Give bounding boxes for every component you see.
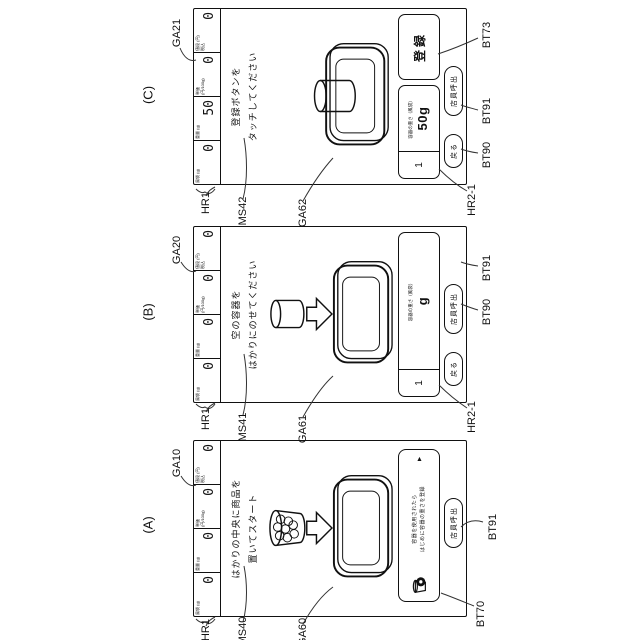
- back-button[interactable]: 戻る: [444, 134, 463, 168]
- tare-index-cell[interactable]: 1: [399, 151, 439, 178]
- header-label: 重量 (g): [196, 554, 201, 571]
- header-value: 0: [202, 488, 217, 496]
- figure-caption-c: (C): [141, 86, 156, 104]
- header-cell-price: 値段 (円) 税込 0: [194, 9, 220, 52]
- header-cell-unitprice: 単価 (円/100g) 0: [194, 484, 220, 528]
- instruction-message-c: 登録ボタンを タッチしてください: [228, 9, 262, 184]
- header-cell-unitprice: 単価 (円/100g) 0: [194, 52, 220, 96]
- tare-label: 容器の重さ（風袋）: [408, 98, 414, 139]
- ref-label-ms40: MS40: [237, 617, 249, 640]
- header-value: 0: [202, 274, 217, 282]
- message-line: タッチしてください: [245, 9, 262, 184]
- ref-label-bt91-a: BT91: [487, 514, 499, 540]
- header-value: 0: [202, 230, 217, 238]
- patent-figure: 風袋 (g) 0 重量 (g) 50 単価 (円/100g) 0 値段 (円) …: [0, 0, 640, 640]
- ref-label-hr1-a: HR1: [200, 619, 212, 640]
- ref-label-bt91-c: BT91: [481, 98, 493, 124]
- header-cell-tare: 風袋 (g) 0: [194, 358, 220, 402]
- header-cell-unitprice: 単価 (円/100g) 0: [194, 270, 220, 314]
- header-value: 0: [202, 144, 217, 152]
- scale-graphic-b: [268, 239, 399, 389]
- tare-index-cell[interactable]: 1: [399, 369, 439, 396]
- tare-value-cell: 容器の重さ（風袋） g: [399, 233, 439, 369]
- ref-label-ms41: MS41: [237, 413, 249, 442]
- header-cell-weight: 重量 (g) 0: [194, 528, 220, 572]
- scale-graphic-a: [268, 453, 399, 603]
- tare-panel: 1 容器の重さ（風袋） 50g: [398, 85, 440, 179]
- ref-label-ga21: GA21: [171, 19, 183, 47]
- header-label: 単価 (円/100g): [196, 296, 205, 313]
- tare-panel: 1 容器の重さ（風袋） g: [398, 232, 440, 397]
- banner-bar-a: 容器を使用されたら はじめに容器の重さを登録 ▲: [398, 449, 440, 602]
- screen-c: 風袋 (g) 0 重量 (g) 50 単価 (円/100g) 0 値段 (円) …: [193, 8, 467, 185]
- message-line: はかりの中央に商品を: [228, 441, 245, 616]
- header-value: 0: [202, 12, 217, 20]
- header-value: 0: [202, 532, 217, 540]
- header-value: 0: [202, 362, 217, 370]
- header-value: 0: [202, 576, 217, 584]
- tare-value: g: [415, 297, 430, 305]
- header-label: 風袋 (g): [196, 384, 201, 401]
- header-label: 重量 (g): [196, 340, 201, 357]
- staff-call-button[interactable]: 店員呼出: [444, 66, 463, 116]
- header-display-c: 風袋 (g) 0 重量 (g) 50 単価 (円/100g) 0 値段 (円) …: [194, 9, 221, 184]
- ref-label-ga61: GA61: [297, 415, 309, 443]
- place-container-illustration: [268, 239, 394, 389]
- message-line: 登録ボタンを: [228, 9, 245, 184]
- tare-bar-c: 1 容器の重さ（風袋） 50g 登録: [398, 14, 440, 179]
- message-line: 空の容器を: [228, 227, 245, 402]
- figure-caption-b: (B): [141, 303, 156, 320]
- tare-bar-b: 1 容器の重さ（風袋） g: [398, 232, 440, 397]
- ref-label-hr2-1-c: HR2-1: [466, 184, 478, 216]
- ref-label-hr1-c: HR1: [200, 192, 212, 214]
- banner-line: はじめに容器の重さを登録: [419, 468, 428, 570]
- ref-label-bt90-c: BT90: [481, 142, 493, 168]
- header-label: 単価 (円/100g): [196, 510, 205, 527]
- header-display-b: 風袋 (g) 0 重量 (g) 0 単価 (円/100g) 0 値段 (円) 税…: [194, 227, 221, 402]
- header-cell-tare: 風袋 (g) 0: [194, 572, 220, 616]
- bottom-buttons-c: 戻る 店員呼出: [444, 66, 463, 168]
- back-button[interactable]: 戻る: [444, 352, 463, 386]
- ref-label-hr2-1-b: HR2-1: [466, 401, 478, 433]
- container-icon: [409, 575, 429, 595]
- ref-label-bt91-b: BT91: [481, 255, 493, 281]
- header-cell-weight: 重量 (g) 50: [194, 96, 220, 140]
- message-line: はかりにのせてください: [245, 227, 262, 402]
- ref-label-ga20: GA20: [171, 236, 183, 264]
- screen-c-wrapper: 風袋 (g) 0 重量 (g) 50 単価 (円/100g) 0 値段 (円) …: [193, 8, 467, 185]
- staff-call-button[interactable]: 店員呼出: [444, 498, 463, 548]
- header-value: 0: [202, 444, 217, 452]
- screen-b: 風袋 (g) 0 重量 (g) 0 単価 (円/100g) 0 値段 (円) 税…: [193, 226, 467, 403]
- ref-label-bt73: BT73: [481, 22, 493, 48]
- header-label: 値段 (円) 税込: [196, 34, 205, 51]
- header-value: 0: [202, 318, 217, 326]
- scale-graphic-c: [268, 21, 399, 171]
- ref-label-hr1-b: HR1: [200, 408, 212, 430]
- register-button[interactable]: 登録: [398, 14, 440, 80]
- container-on-scale-illustration: [268, 21, 394, 171]
- header-cell-tare: 風袋 (g) 0: [194, 140, 220, 184]
- header-label: 値段 (円) 税込: [196, 466, 205, 483]
- instruction-message-b: 空の容器を はかりにのせてください: [228, 227, 262, 402]
- screen-a: 風袋 (g) 0 重量 (g) 0 単価 (円/100g) 0 値段 (円) 税…: [193, 440, 467, 617]
- ref-label-ms42: MS42: [237, 197, 249, 226]
- ref-label-ga60: GA60: [297, 618, 309, 640]
- screen-b-wrapper: 風袋 (g) 0 重量 (g) 0 単価 (円/100g) 0 値段 (円) 税…: [193, 226, 467, 403]
- banner-line: 容器を使用されたら: [411, 468, 420, 570]
- figure-caption-a: (A): [141, 516, 156, 533]
- message-line: 置いてスタート: [245, 441, 262, 616]
- ref-label-bt90-b: BT90: [481, 299, 493, 325]
- screen-a-wrapper: 風袋 (g) 0 重量 (g) 0 単価 (円/100g) 0 値段 (円) 税…: [193, 440, 467, 617]
- bottom-buttons-b: 戻る 店員呼出: [444, 284, 463, 386]
- header-label: 風袋 (g): [196, 166, 201, 183]
- tare-label: 容器の重さ（風袋）: [408, 281, 414, 322]
- header-display-a: 風袋 (g) 0 重量 (g) 0 単価 (円/100g) 0 値段 (円) 税…: [194, 441, 221, 616]
- ref-label-ga10: GA10: [171, 449, 183, 477]
- bottom-buttons-a: 店員呼出: [444, 498, 463, 548]
- header-cell-weight: 重量 (g) 0: [194, 314, 220, 358]
- instruction-message-a: はかりの中央に商品を 置いてスタート: [228, 441, 262, 616]
- header-label: 重量 (g): [196, 122, 201, 139]
- banner-text: 容器を使用されたら はじめに容器の重さを登録: [411, 468, 428, 570]
- header-cell-price: 値段 (円) 税込 0: [194, 441, 220, 484]
- tare-value: 50g: [415, 107, 430, 131]
- ref-label-ga62: GA62: [297, 199, 309, 227]
- ref-label-bt70: BT70: [475, 601, 487, 627]
- register-container-weight-banner[interactable]: 容器を使用されたら はじめに容器の重さを登録 ▲: [398, 449, 440, 602]
- header-value: 0: [202, 56, 217, 64]
- header-label: 風袋 (g): [196, 598, 201, 615]
- header-value: 50: [202, 100, 217, 116]
- tare-value-cell: 容器の重さ（風袋） 50g: [399, 86, 439, 151]
- expand-triangle-icon: ▲: [416, 456, 423, 463]
- staff-call-button[interactable]: 店員呼出: [444, 284, 463, 334]
- header-label: 値段 (円) 税込: [196, 252, 205, 269]
- place-product-illustration: [268, 453, 394, 603]
- header-label: 単価 (円/100g): [196, 78, 205, 95]
- header-cell-price: 値段 (円) 税込 0: [194, 227, 220, 270]
